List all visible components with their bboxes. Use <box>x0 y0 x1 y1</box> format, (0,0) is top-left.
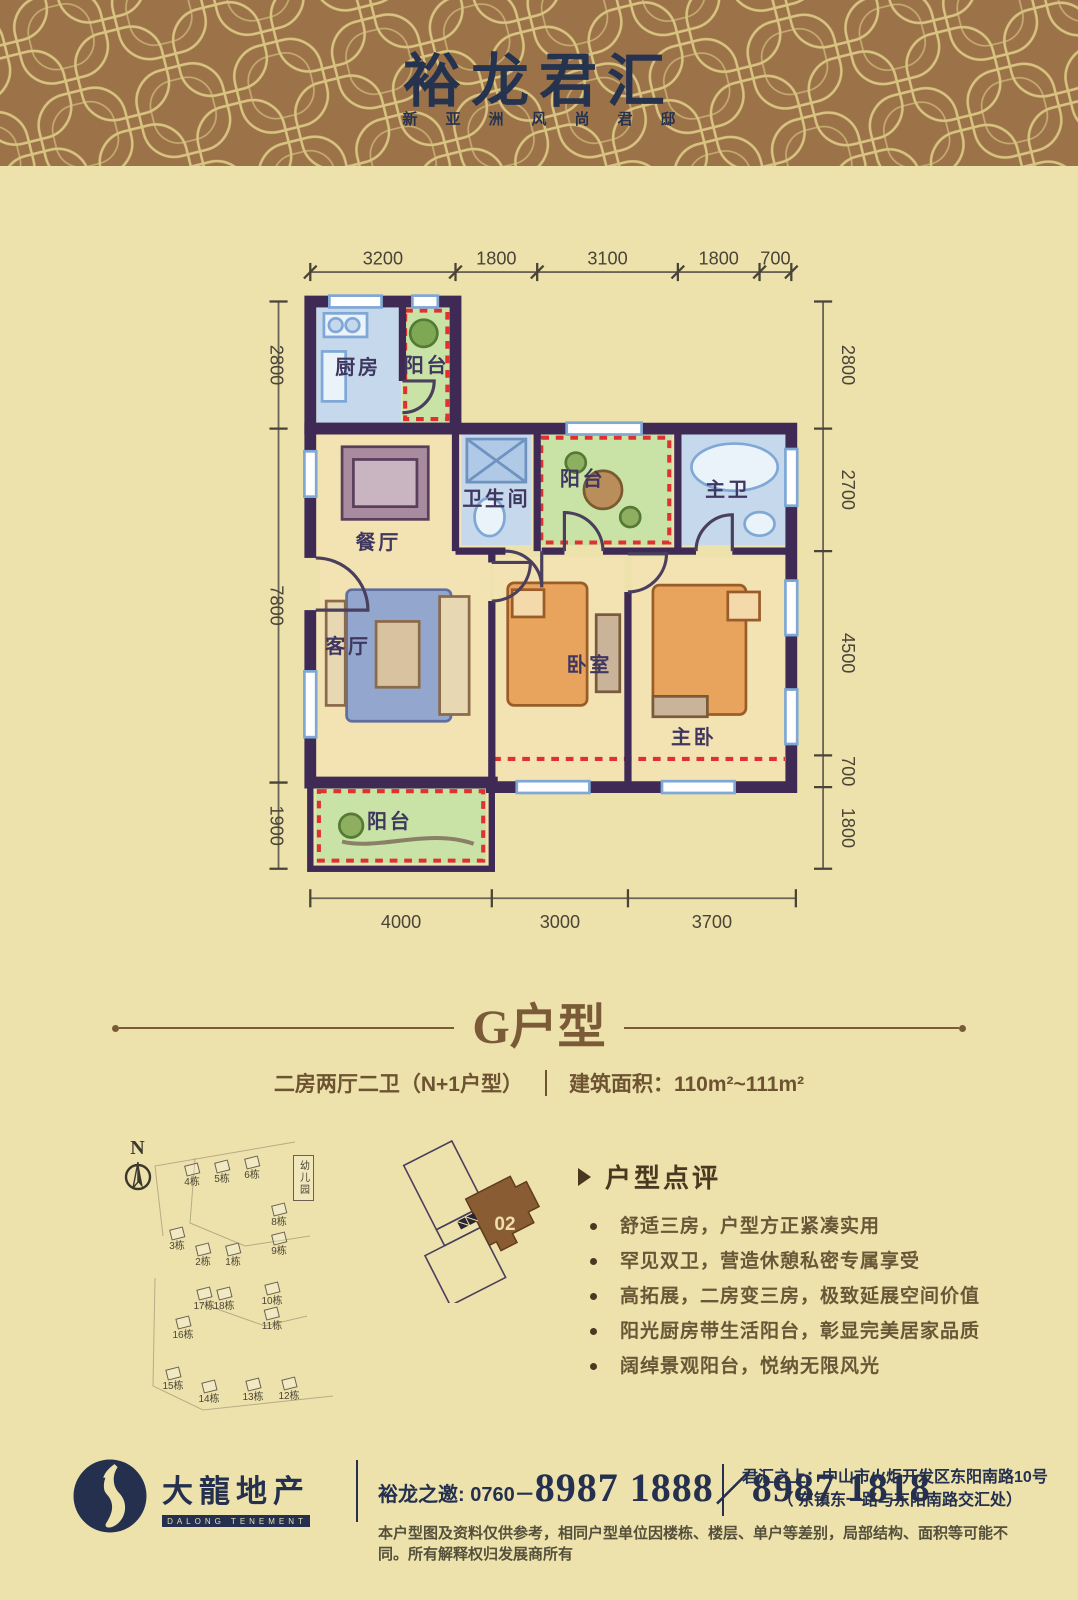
compass: N <box>118 1137 158 1199</box>
review-item: 舒适三房，户型方正紧凑实用 <box>578 1209 1018 1244</box>
building-label: 6栋 <box>244 1157 260 1181</box>
unit-locator: 02 <box>378 1138 568 1303</box>
dim-top-1: 3200 <box>363 248 403 268</box>
footer-divider-2 <box>722 1464 724 1516</box>
review-header: 户型点评 <box>578 1158 1018 1195</box>
dim-left-3: 1900 <box>266 805 286 845</box>
dim-bottom-3: 3700 <box>692 912 732 932</box>
disclaimer-text: 本户型图及资料仅供参考，相同户型单位因楼栋、楼层、单户等差别，局部结构、面积等可… <box>378 1522 1026 1564</box>
kindergarten-label: 幼儿园 <box>293 1155 314 1201</box>
review-item: 罕见双卫，营造休憩私密专属享受 <box>578 1244 1018 1279</box>
building-label: 17栋 <box>193 1288 214 1312</box>
room-label-mid-balcony: 阳台 <box>560 466 605 490</box>
spec-divider <box>545 1070 547 1096</box>
dim-left-1: 2800 <box>266 345 286 385</box>
review-title: 户型点评 <box>605 1158 721 1195</box>
address-label: 君汇之上： <box>742 1469 822 1486</box>
rule-dot-left <box>112 1025 119 1032</box>
room-label-master-bath: 主卫 <box>705 478 750 502</box>
room-label-bathroom: 卫生间 <box>462 488 530 511</box>
building-label: 1栋 <box>225 1244 241 1268</box>
building-label: 9栋 <box>271 1233 287 1257</box>
building-label: 2栋 <box>195 1244 211 1268</box>
floor-plan-drawing: 厨房 阳台 卫生间 阳台 主卫 餐厅 客厅 卧室 主卧 阳台 3200 1800… <box>224 238 864 955</box>
building-label: 10栋 <box>261 1283 282 1307</box>
building-label: 4栋 <box>184 1164 200 1188</box>
dim-right-1: 2800 <box>838 345 858 385</box>
dim-bottom-2: 3000 <box>540 912 580 932</box>
rule-left <box>119 1027 454 1029</box>
room-label-service-balcony: 阳台 <box>404 353 449 377</box>
review-list: 舒适三房，户型方正紧凑实用 罕见双卫，营造休憩私密专属享受 高拓展，二房变三房，… <box>578 1209 1018 1384</box>
floor-plan: 厨房 阳台 卫生间 阳台 主卫 餐厅 客厅 卧室 主卧 阳台 3200 1800… <box>224 238 864 955</box>
dim-top-3: 3100 <box>587 248 627 268</box>
unit-locator-diagram: 02 <box>378 1138 568 1303</box>
building-label: 15栋 <box>162 1368 183 1392</box>
triangle-bullet-icon <box>578 1168 591 1186</box>
project-address: 君汇之上：中山市火炬开发区东阳南路10号 （ 东镇东一路与东阳南路交汇处） <box>742 1466 1022 1512</box>
dim-top-5: 700 <box>760 248 790 268</box>
dim-bottom-1: 4000 <box>381 912 421 932</box>
hotline-prefix: 裕龙之邀: 0760－ <box>378 1478 535 1507</box>
address-text: 中山市火炬开发区东阳南路10号 <box>822 1469 1048 1486</box>
hotline-number-1: 8987 1888 <box>535 1464 714 1511</box>
review-item: 高拓展，二房变三房，极致延展空间价值 <box>578 1279 1018 1314</box>
site-plan: N 幼儿园 4栋 5栋 6栋 3栋 2栋 1栋 8栋 9栋 17栋 18栋 16… <box>95 1128 345 1423</box>
review-item: 阳光厨房带生活阳台，彰显完美居家品质 <box>578 1314 1018 1349</box>
room-label-living: 客厅 <box>324 634 370 658</box>
rule-dot-right <box>959 1025 966 1032</box>
dim-top-2: 1800 <box>476 248 516 268</box>
developer-logo: 大龍地产 DALONG TENEMENT <box>72 1458 310 1534</box>
dim-right-3: 4500 <box>838 633 858 673</box>
developer-name-en: DALONG TENEMENT <box>162 1515 310 1527</box>
footer-divider-1 <box>356 1460 358 1522</box>
unit-layout-spec: 二房两厅二卫（N+1户型） <box>274 1068 523 1098</box>
building-label: 16栋 <box>172 1317 193 1341</box>
unit-review: 户型点评 舒适三房，户型方正紧凑实用 罕见双卫，营造休憩私密专属享受 高拓展，二… <box>578 1158 1018 1384</box>
building-label: 3栋 <box>169 1228 185 1252</box>
unit-number: 02 <box>494 1214 515 1235</box>
highlighted-unit-02 <box>466 1171 549 1254</box>
building-label: 5栋 <box>214 1161 230 1185</box>
dim-right-5: 1800 <box>838 808 858 848</box>
unit-name: G户型 <box>472 1002 605 1054</box>
dim-top-4: 1800 <box>699 248 739 268</box>
room-label-bottom-balcony: 阳台 <box>367 809 412 833</box>
compass-n-label: N <box>118 1137 158 1160</box>
building-label: 18栋 <box>213 1288 234 1312</box>
header-band: 裕龙君汇 新亚洲风尚君邸 <box>0 0 1078 166</box>
building-label: 12栋 <box>278 1378 299 1402</box>
room-label-bedroom: 卧室 <box>567 652 612 676</box>
room-label-master-bedroom: 主卧 <box>671 725 716 749</box>
dragon-logo-icon <box>72 1458 148 1534</box>
dim-right-4: 700 <box>838 756 858 786</box>
unit-heading: G户型 <box>0 1002 1078 1054</box>
building-label: 13栋 <box>242 1379 263 1403</box>
building-label: 14栋 <box>198 1381 219 1405</box>
unit-spec-row: 二房两厅二卫（N+1户型） 建筑面积：110m²~111m² <box>0 1068 1078 1098</box>
address-line-1: 君汇之上：中山市火炬开发区东阳南路10号 <box>742 1466 1022 1489</box>
unit-area: 建筑面积：110m²~111m² <box>569 1068 804 1098</box>
core-icon <box>457 1213 478 1230</box>
room-label-dining: 餐厅 <box>356 530 401 554</box>
project-title: 裕龙君汇 <box>0 34 1078 118</box>
address-line-2: （ 东镇东一路与东阳南路交汇处） <box>742 1489 1022 1512</box>
review-item: 阔绰景观阳台，悦纳无限风光 <box>578 1349 1018 1384</box>
footer: 大龍地产 DALONG TENEMENT 裕龙之邀: 0760－ 8987 18… <box>0 1448 1078 1578</box>
dim-left-2: 7800 <box>266 585 286 625</box>
developer-name-cn: 大龍地产 <box>162 1466 310 1511</box>
dim-right-2: 2700 <box>838 470 858 510</box>
building-label: 8栋 <box>271 1204 287 1228</box>
project-slogan: 新亚洲风尚君邸 <box>0 108 1078 129</box>
building-label: 11栋 <box>262 1308 282 1332</box>
room-label-kitchen: 厨房 <box>335 355 380 379</box>
rule-right <box>624 1027 959 1029</box>
compass-icon <box>121 1160 155 1194</box>
